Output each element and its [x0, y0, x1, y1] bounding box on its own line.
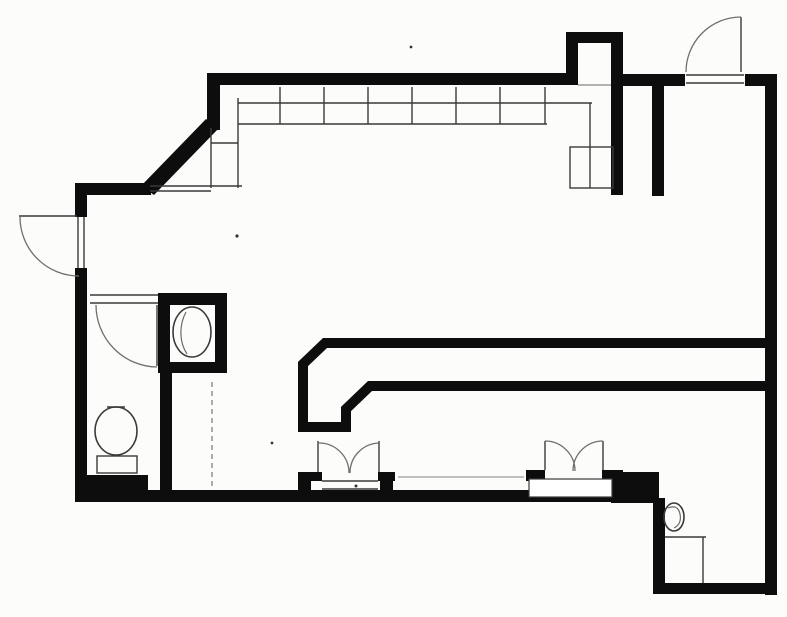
scan-speck-4 — [355, 485, 358, 488]
water-heater-tank — [173, 307, 211, 357]
entry2-threshold — [529, 479, 612, 497]
left-wall-lower — [75, 268, 87, 502]
counter-end-equipment-box — [570, 147, 613, 188]
left-corner-wall — [75, 183, 151, 195]
water-heater-squiggle — [181, 312, 187, 354]
wc-door-swing — [96, 305, 157, 367]
entry1-door-swing-left — [318, 443, 349, 473]
left-exterior-door-swing — [20, 217, 79, 276]
entry1-door-swing-right — [350, 443, 379, 473]
entry2-door-swing-left — [545, 441, 575, 471]
entry1-jamb-stub-right — [378, 472, 395, 481]
scan-speck-1 — [410, 46, 413, 49]
entry2-door-swing-right — [573, 441, 603, 471]
bottom-wall-right-section — [653, 583, 777, 594]
scan-speck-2 — [235, 234, 238, 237]
entry1-jamb-stub-left — [298, 472, 322, 481]
top-wall-left-section — [207, 73, 578, 85]
floor-plan-drawing — [0, 0, 787, 617]
corner-fixture-squiggle — [668, 507, 680, 528]
closet-right-wall — [215, 293, 227, 373]
partition-stub-wall — [652, 78, 664, 196]
top-exterior-door-swing — [686, 17, 741, 72]
toilet-bowl — [95, 407, 137, 455]
wc-right-wall — [160, 373, 172, 492]
service-corridor-wall — [303, 343, 772, 427]
scan-speck-3 — [271, 442, 274, 445]
right-outer-wall — [765, 74, 777, 595]
step-down-wall — [653, 498, 665, 588]
diagonal-wall — [141, 119, 219, 195]
bottom-wall-thick-block-left — [75, 475, 148, 502]
closet-bottom-wall — [158, 362, 227, 373]
toilet-tank — [97, 456, 137, 473]
floor-plan-page — [0, 0, 787, 617]
